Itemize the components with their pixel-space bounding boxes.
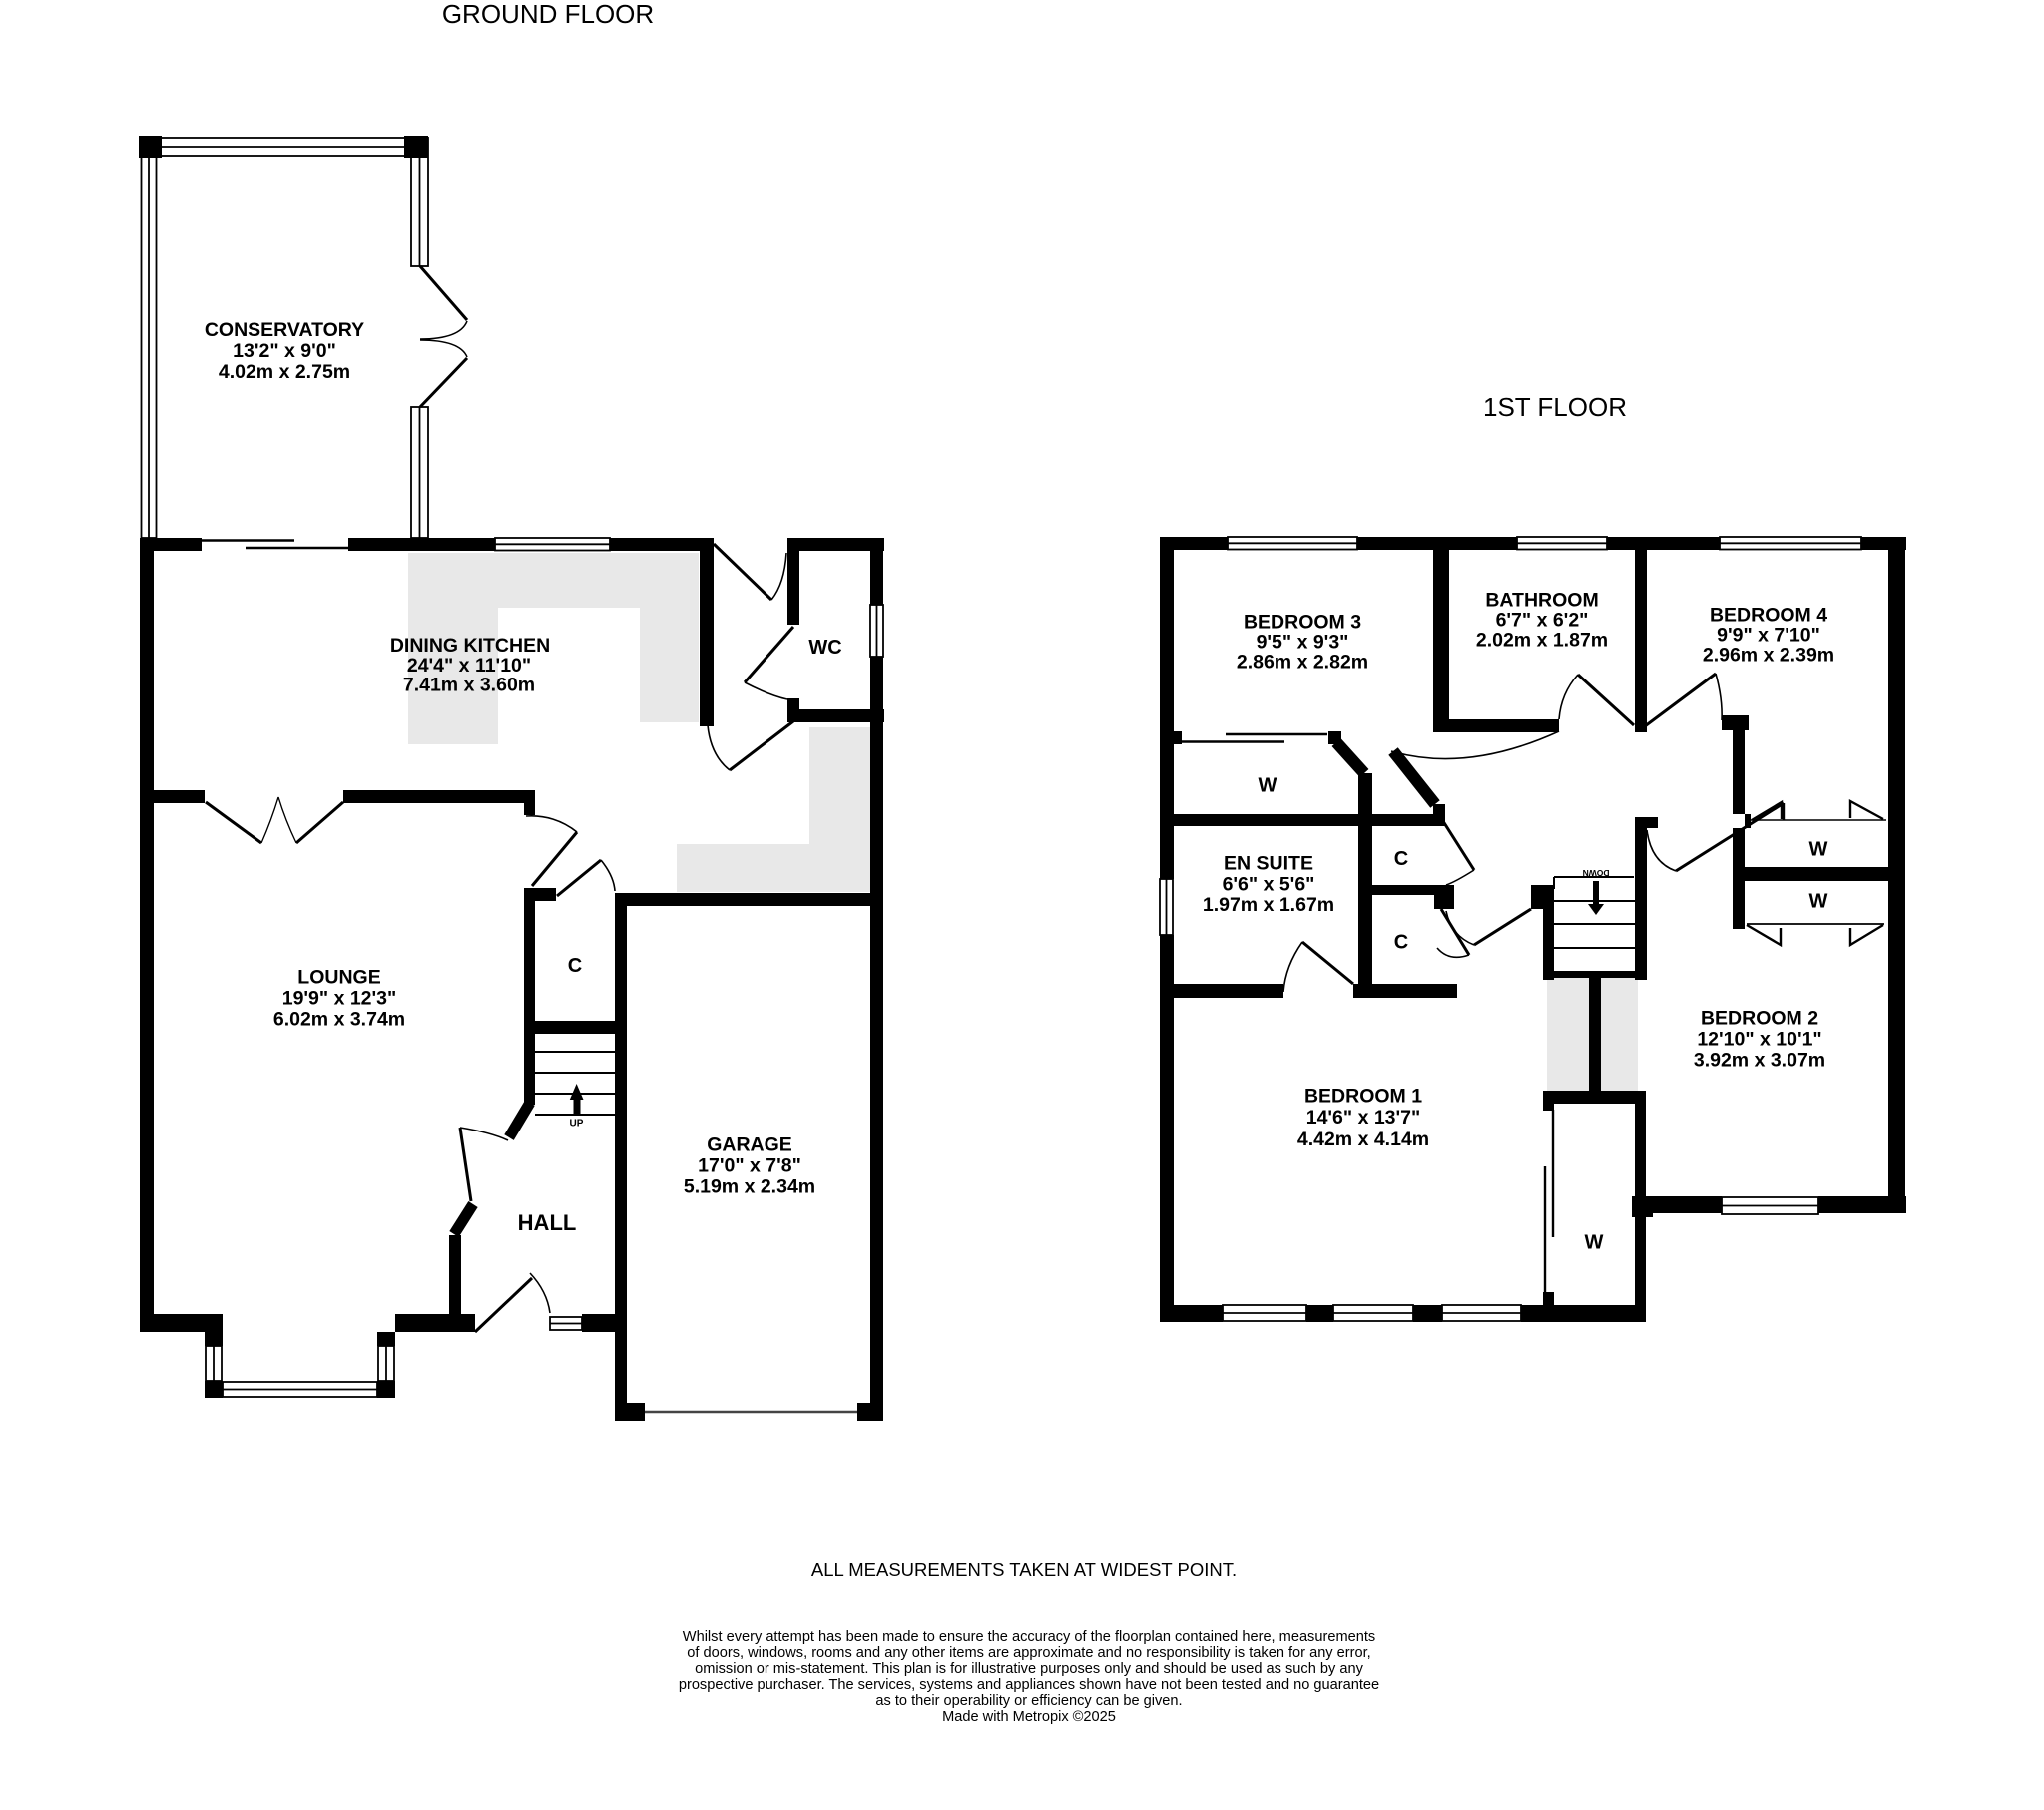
svg-text:W: W bbox=[1809, 839, 1828, 861]
svg-text:WC: WC bbox=[808, 637, 841, 659]
svg-text:ALL MEASUREMENTS TAKEN AT WIDE: ALL MEASUREMENTS TAKEN AT WIDEST POINT. bbox=[811, 1559, 1237, 1580]
svg-text:C: C bbox=[568, 955, 582, 977]
svg-text:7.41m x 3.60m: 7.41m x 3.60m bbox=[403, 675, 535, 696]
svg-text:W: W bbox=[1809, 891, 1828, 913]
svg-text:UP: UP bbox=[570, 1119, 584, 1130]
svg-text:BEDROOM 2: BEDROOM 2 bbox=[1701, 1008, 1818, 1030]
svg-text:omission or mis-statement. Thi: omission or mis-statement. This plan is … bbox=[695, 1661, 1363, 1677]
svg-text:CONSERVATORY: CONSERVATORY bbox=[205, 319, 364, 341]
svg-text:C: C bbox=[1394, 932, 1408, 954]
svg-text:6'6" x 5'6": 6'6" x 5'6" bbox=[1223, 874, 1315, 896]
svg-text:2.02m x 1.87m: 2.02m x 1.87m bbox=[1476, 630, 1608, 652]
svg-text:BEDROOM 3: BEDROOM 3 bbox=[1244, 612, 1361, 634]
svg-text:1ST FLOOR: 1ST FLOOR bbox=[1483, 392, 1627, 422]
svg-text:14'6" x 13'7": 14'6" x 13'7" bbox=[1306, 1107, 1421, 1129]
svg-text:6'7" x 6'2": 6'7" x 6'2" bbox=[1496, 610, 1589, 632]
svg-text:GROUND FLOOR: GROUND FLOOR bbox=[442, 0, 654, 29]
svg-text:9'5" x 9'3": 9'5" x 9'3" bbox=[1257, 632, 1349, 654]
svg-text:3.92m x 3.07m: 3.92m x 3.07m bbox=[1694, 1050, 1825, 1072]
svg-text:13'2" x 9'0": 13'2" x 9'0" bbox=[233, 340, 336, 362]
svg-text:C: C bbox=[1394, 848, 1408, 870]
svg-text:BEDROOM 1: BEDROOM 1 bbox=[1304, 1086, 1422, 1108]
svg-text:1.97m x 1.67m: 1.97m x 1.67m bbox=[1203, 894, 1334, 916]
svg-text:W: W bbox=[1585, 1232, 1604, 1254]
svg-text:EN SUITE: EN SUITE bbox=[1224, 853, 1313, 875]
svg-text:GARAGE: GARAGE bbox=[707, 1134, 792, 1156]
svg-text:Whilst every attempt has been: Whilst every attempt has been made to en… bbox=[683, 1629, 1375, 1645]
svg-text:17'0" x 7'8": 17'0" x 7'8" bbox=[698, 1155, 801, 1177]
svg-text:5.19m x 2.34m: 5.19m x 2.34m bbox=[684, 1176, 815, 1198]
svg-text:DINING KITCHEN: DINING KITCHEN bbox=[390, 635, 550, 657]
svg-text:BEDROOM 4: BEDROOM 4 bbox=[1710, 605, 1827, 627]
svg-text:as to their operability or eff: as to their operability or efficiency ca… bbox=[875, 1693, 1182, 1709]
svg-text:4.42m x 4.14m: 4.42m x 4.14m bbox=[1297, 1129, 1429, 1150]
svg-text:4.02m x 2.75m: 4.02m x 2.75m bbox=[219, 361, 350, 383]
svg-text:19'9" x 12'3": 19'9" x 12'3" bbox=[282, 988, 397, 1010]
svg-text:DOWN: DOWN bbox=[1583, 868, 1610, 878]
svg-text:Made with Metropix ©2025: Made with Metropix ©2025 bbox=[942, 1709, 1116, 1725]
svg-text:LOUNGE: LOUNGE bbox=[297, 967, 380, 989]
svg-text:of doors, windows, rooms and a: of doors, windows, rooms and any other i… bbox=[687, 1645, 1370, 1661]
svg-text:BATHROOM: BATHROOM bbox=[1485, 590, 1598, 612]
svg-text:6.02m x 3.74m: 6.02m x 3.74m bbox=[273, 1009, 405, 1031]
svg-text:2.86m x 2.82m: 2.86m x 2.82m bbox=[1237, 652, 1368, 674]
svg-text:HALL: HALL bbox=[518, 1210, 577, 1235]
svg-text:W: W bbox=[1259, 775, 1277, 797]
svg-text:12'10" x 10'1": 12'10" x 10'1" bbox=[1697, 1029, 1821, 1051]
svg-text:2.96m x 2.39m: 2.96m x 2.39m bbox=[1703, 645, 1834, 667]
svg-text:prospective purchaser. The ser: prospective purchaser. The services, sys… bbox=[679, 1677, 1379, 1693]
svg-text:9'9" x 7'10": 9'9" x 7'10" bbox=[1717, 625, 1820, 647]
